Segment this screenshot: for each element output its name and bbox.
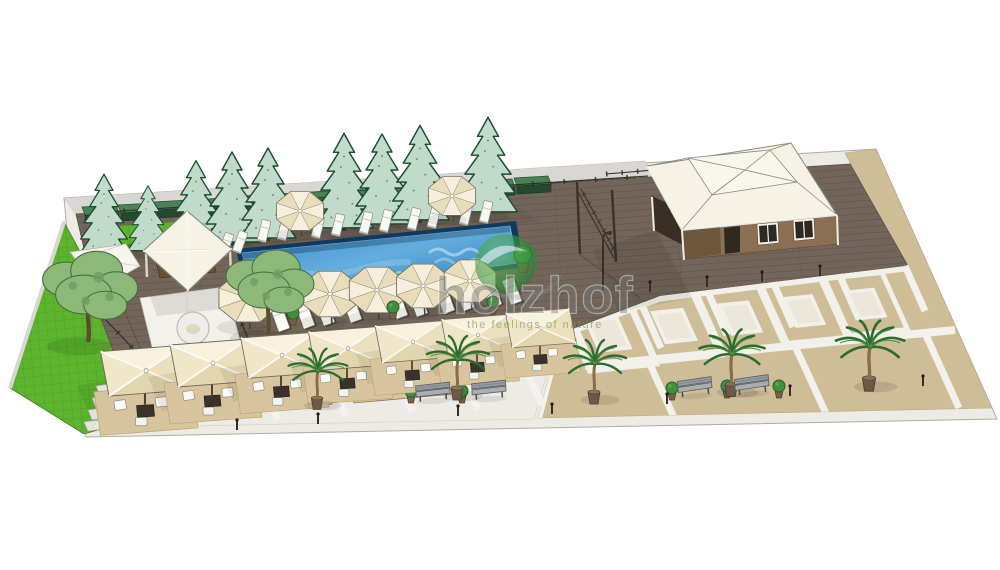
park-bench: [471, 380, 506, 403]
pavilion-door: [724, 226, 740, 254]
site-plan-rendering: holzhof the feelings of nature: [0, 0, 1000, 570]
render-canvas: holzhof the feelings of nature: [0, 0, 1000, 570]
park-bench: [415, 382, 450, 405]
watermark-brand: holzhof: [436, 267, 635, 325]
pavilion-side-wall: [682, 226, 721, 259]
watermark-tagline: the feelings of nature: [467, 319, 603, 331]
fire-pit-center: [186, 324, 200, 334]
pavilion-window: [757, 222, 779, 245]
pavilion-window: [793, 218, 815, 241]
